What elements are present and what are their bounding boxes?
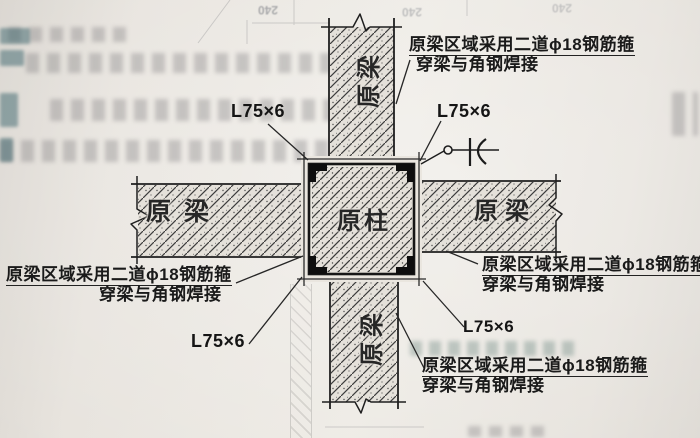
note-right: 原梁区域采用二道ϕ18钢筋箍 穿梁与角钢焊接 xyxy=(482,255,700,295)
weld-symbol xyxy=(421,138,499,166)
angle-size-label-top-right: L75×6 xyxy=(437,101,491,122)
note-line2: 穿梁与角钢焊接 xyxy=(482,275,605,294)
beam-label-bottom: 原梁 xyxy=(352,314,376,366)
leader-note-right xyxy=(446,251,478,264)
note-left: 原梁区域采用二道ϕ18钢筋箍 穿梁与角钢焊接 xyxy=(6,265,232,305)
angle-size-label-bottom-left: L75×6 xyxy=(191,331,245,352)
leader-angle-top-left xyxy=(268,124,308,160)
note-line2: 穿梁与角钢焊接 xyxy=(6,285,222,304)
beam-label-right: 原梁 xyxy=(474,191,536,226)
double-fillet-weld-mark xyxy=(470,138,486,166)
angle-size-label-bottom-right: L75×6 xyxy=(463,317,514,337)
leader-angle-bottom-right xyxy=(423,281,464,327)
note-bottom-right: 原梁区域采用二道ϕ18钢筋箍 穿梁与角钢焊接 xyxy=(422,356,648,396)
paper-photo-background: 240 240 240 xyxy=(0,0,700,438)
beam-label-top: 原梁 xyxy=(349,56,373,108)
leader-note-top-right xyxy=(396,60,410,104)
note-line2: 穿梁与角钢焊接 xyxy=(409,55,539,74)
beam-label-left: 原梁 xyxy=(146,192,222,228)
note-line1: 原梁区域采用二道ϕ18钢筋箍 xyxy=(409,35,635,56)
note-line1: 原梁区域采用二道ϕ18钢筋箍 xyxy=(482,255,700,276)
leader-angle-bottom-left xyxy=(249,277,302,344)
column-label: 原柱 xyxy=(337,201,391,236)
note-top-right: 原梁区域采用二道ϕ18钢筋箍 穿梁与角钢焊接 xyxy=(409,35,635,75)
angle-size-label-top-left: L75×6 xyxy=(231,101,285,122)
leader-note-bottom-right xyxy=(396,313,424,368)
leader-note-left xyxy=(236,256,303,283)
note-line2: 穿梁与角钢焊接 xyxy=(422,376,545,395)
note-line1: 原梁区域采用二道ϕ18钢筋箍 xyxy=(422,356,648,377)
weld-all-around-circle xyxy=(444,146,452,154)
note-line1: 原梁区域采用二道ϕ18钢筋箍 xyxy=(6,265,232,286)
